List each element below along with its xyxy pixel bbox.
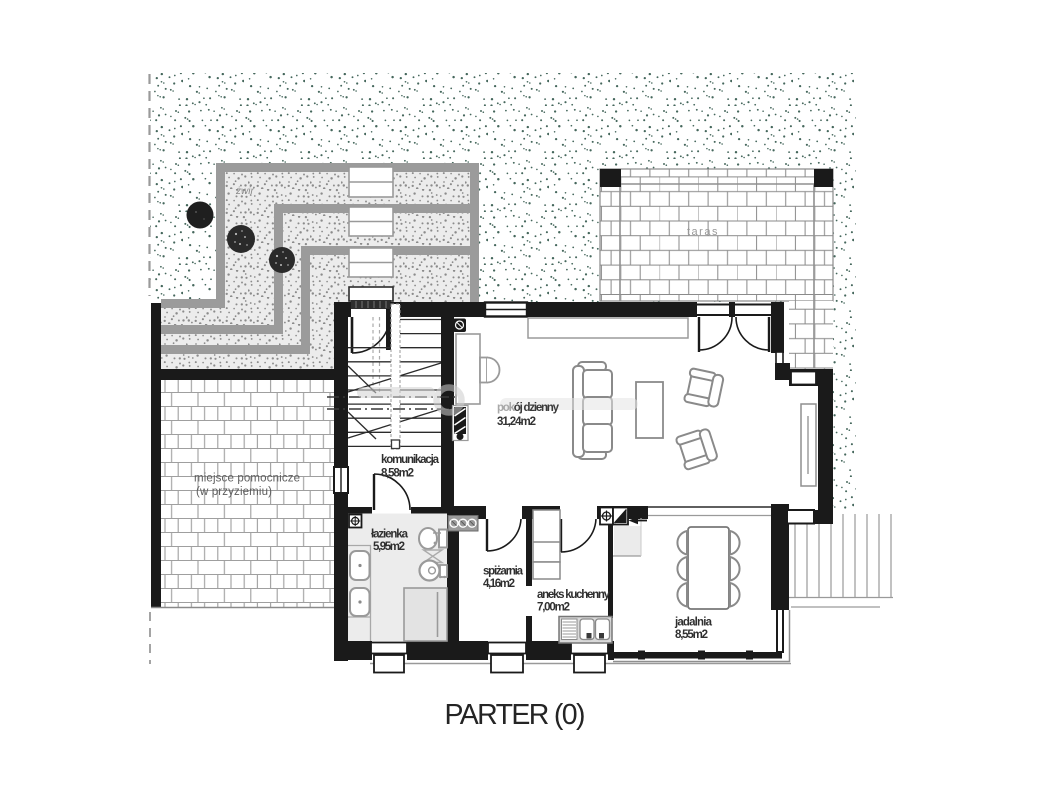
svg-text:8,55m2: 8,55m2 bbox=[675, 629, 708, 641]
svg-text:5,95m2: 5,95m2 bbox=[373, 541, 405, 553]
svg-text:pokój dzienny: pokój dzienny bbox=[497, 402, 560, 414]
svg-text:łazienka: łazienka bbox=[371, 529, 409, 541]
svg-text:aneks kuchenny: aneks kuchenny bbox=[537, 589, 611, 601]
svg-text:spiżarnia: spiżarnia bbox=[483, 566, 524, 578]
svg-text:jadalnia: jadalnia bbox=[674, 617, 713, 629]
svg-text:PARTER (0): PARTER (0) bbox=[445, 699, 586, 731]
svg-text:8,58m2: 8,58m2 bbox=[381, 468, 414, 480]
svg-text:(w przyziemiu): (w przyziemiu) bbox=[196, 486, 272, 498]
svg-text:7,00m2: 7,00m2 bbox=[537, 602, 570, 614]
svg-text:miejsce pomocnicze: miejsce pomocnicze bbox=[194, 473, 300, 485]
svg-text:komunikacja: komunikacja bbox=[381, 454, 440, 466]
svg-text:taras: taras bbox=[687, 226, 719, 238]
svg-text:żwir: żwir bbox=[235, 186, 254, 197]
svg-text:31,24m2: 31,24m2 bbox=[497, 416, 536, 428]
svg-text:4,16m2: 4,16m2 bbox=[483, 578, 515, 590]
